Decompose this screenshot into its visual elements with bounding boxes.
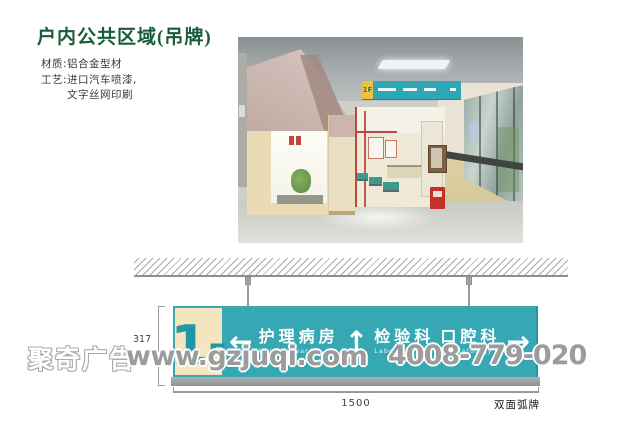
sign-entry-nursing-ward: 护理病房 Nursing ward <box>259 328 339 355</box>
sign-drawing: 1F ← 护理病房 Nursing ward ↑ 检验科 Laboratory … <box>171 306 540 386</box>
entry-en-label: Stomatology <box>440 347 500 355</box>
entry-zh-label: 检验科 <box>374 328 434 346</box>
photo-wall-plate <box>239 105 245 117</box>
photo-sign-floor-label: 1F <box>362 81 373 99</box>
photo-red-poster <box>289 136 294 145</box>
sign-type-label: 双面弧牌 <box>494 397 540 412</box>
photo-left-doorway <box>247 131 355 215</box>
spec-process: 工艺:进口汽车喷漆, <box>41 73 137 89</box>
photo-fluorescent-light <box>377 60 450 69</box>
entry-zh-label: 口腔科 <box>440 328 500 346</box>
arrow-right-icon: → <box>507 328 530 356</box>
sign-entry-laboratory: 检验科 Laboratory <box>374 328 434 355</box>
entry-en-label: Laboratory <box>374 347 434 355</box>
hanging-rod <box>247 277 249 309</box>
arrow-up-icon: ↑ <box>345 328 368 356</box>
floor-number: 1 <box>170 324 208 368</box>
material-specs: 材质:铝合金型材 工艺:进口汽车喷漆, 文字丝网印刷 <box>41 57 137 104</box>
photo-plant <box>291 169 311 193</box>
photo-extinguisher-label <box>433 191 442 197</box>
photo-sign-text-bar <box>403 88 417 91</box>
sign-base-strip <box>171 377 540 386</box>
photo-waiting-bench <box>383 182 399 192</box>
width-dimension-value: 1500 <box>173 398 539 409</box>
spec-process-2: 文字丝网印刷 <box>41 88 137 104</box>
photo-notice-board-paper <box>431 148 442 168</box>
photo-waiting-bench <box>369 177 382 186</box>
watermark-brand: 聚奇广告 <box>28 347 136 372</box>
sign-floor-block: 1F <box>175 308 222 375</box>
sign-content-row: ← 护理病房 Nursing ward ↑ 检验科 Laboratory 口腔科… <box>229 314 530 369</box>
photo-red-doorframe-top <box>355 131 397 133</box>
photo-red-poster <box>296 136 301 145</box>
photo-sign-text-bar <box>450 88 456 91</box>
hanging-rod <box>468 277 470 309</box>
photo-left-wall-edge <box>238 53 247 187</box>
sign-entry-stomatology: 口腔科 Stomatology <box>440 328 500 355</box>
photo-fire-extinguisher-box <box>430 187 445 209</box>
photo-sign-text-bar <box>378 88 396 91</box>
floor-letter: F <box>208 341 226 368</box>
ceiling-hatch <box>134 258 568 277</box>
photo-hanging-sign: 1F <box>362 81 461 100</box>
height-dimension-value: 317 <box>133 334 151 345</box>
photo-waiting-bench <box>357 173 368 181</box>
spec-material: 材质:铝合金型材 <box>41 57 137 73</box>
arrow-left-icon: ← <box>229 328 252 356</box>
photo-pillar <box>328 115 355 215</box>
photo-sign-text-bar <box>424 88 436 91</box>
photo-notice-board <box>428 145 447 173</box>
photo-far-counter <box>387 165 421 178</box>
width-dimension-bracket <box>173 387 539 393</box>
photo-window-notice <box>470 122 478 142</box>
photo-floor-mat <box>277 195 323 204</box>
entry-en-label: Nursing ward <box>259 347 339 355</box>
photo-red-doorframe <box>355 107 357 207</box>
design-proof-sheet: 户内公共区域(吊牌) 材质:铝合金型材 工艺:进口汽车喷漆, 文字丝网印刷 <box>0 0 630 430</box>
entry-zh-label: 护理病房 <box>259 328 339 346</box>
photo-red-doorframe <box>364 111 366 207</box>
page-title: 户内公共区域(吊牌) <box>37 22 212 49</box>
photo-corridor-window <box>368 137 384 159</box>
photo-pillar-base <box>329 211 355 215</box>
photo-pillar-top <box>329 115 355 137</box>
photo-corridor-window <box>385 140 397 158</box>
corridor-photo: 1F <box>238 37 523 243</box>
height-dimension-bracket <box>158 306 165 386</box>
